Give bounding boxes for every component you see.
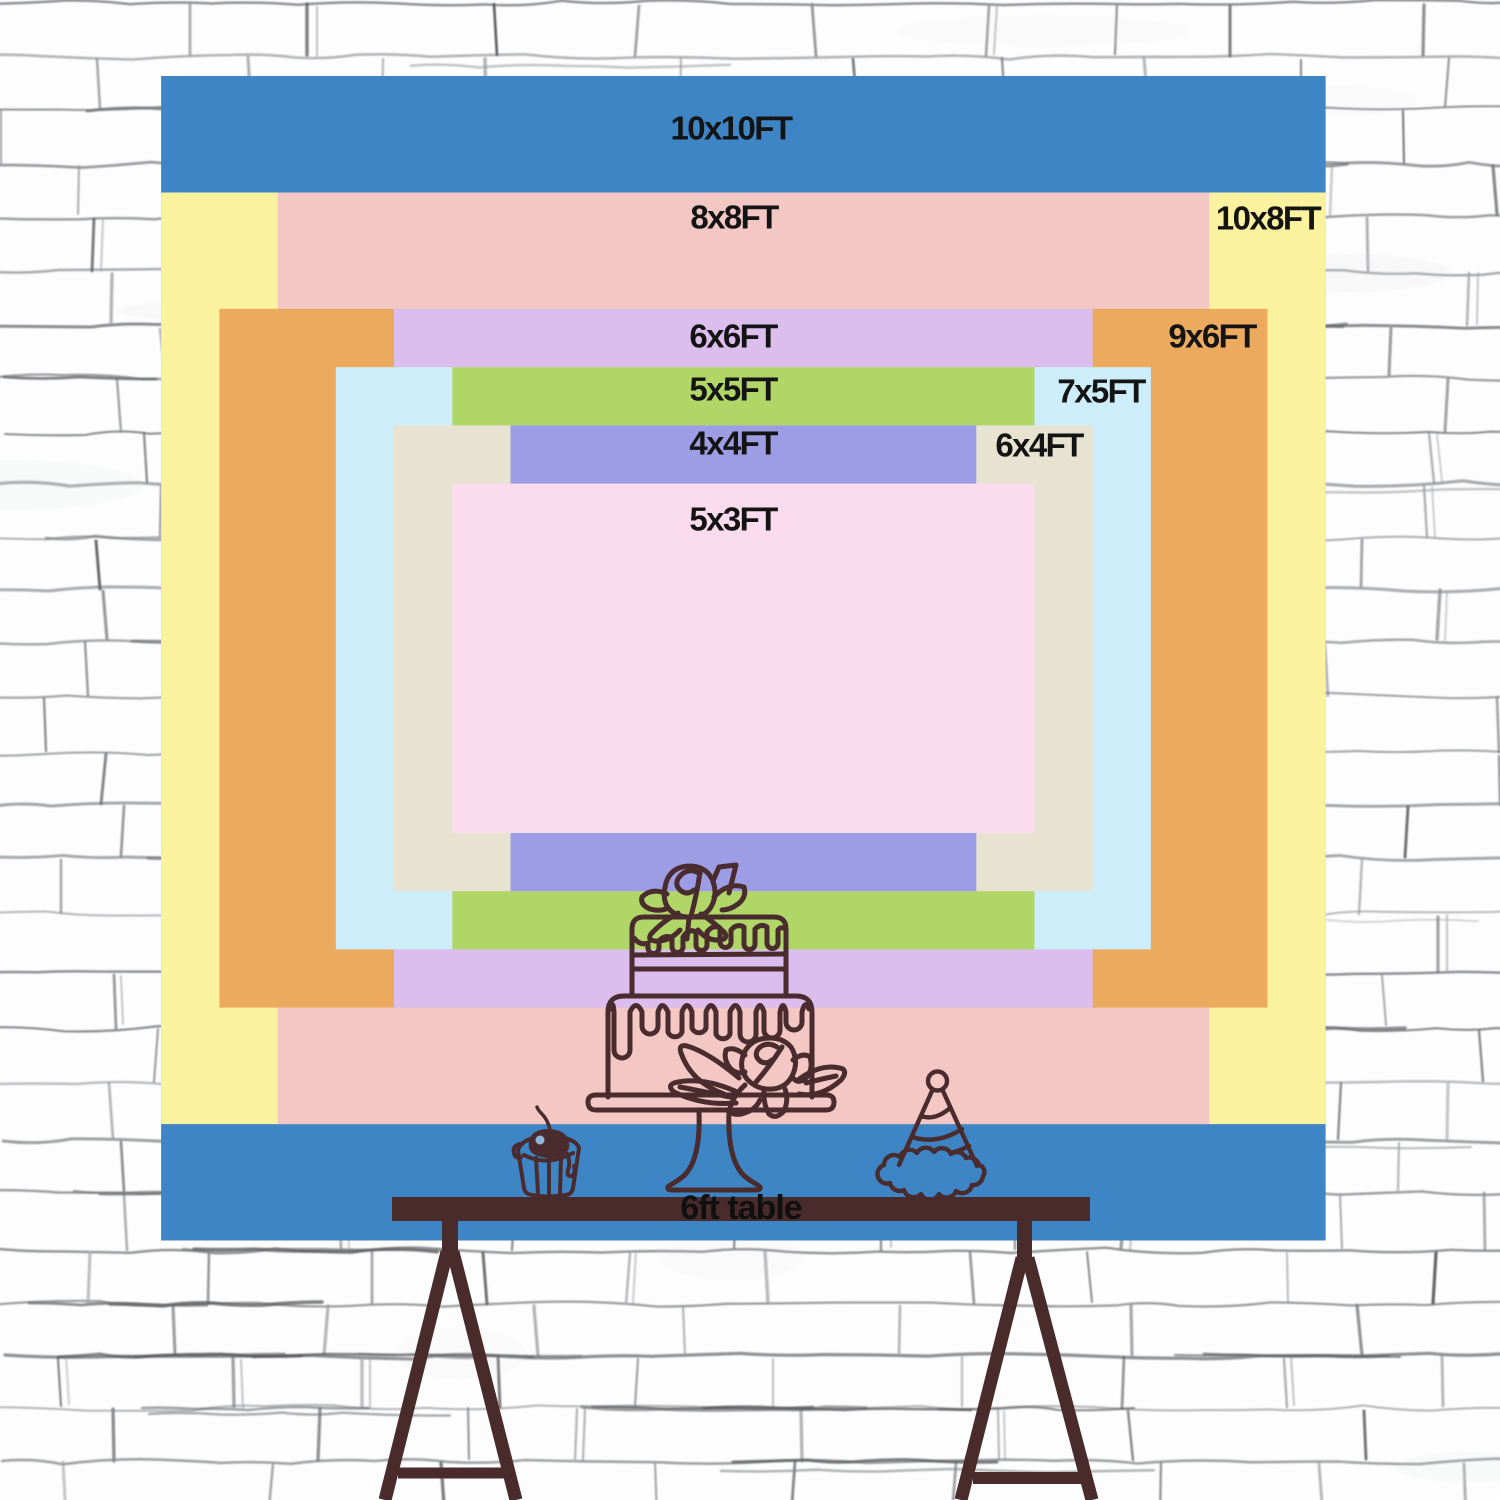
svg-text:5x5FT: 5x5FT: [689, 371, 778, 408]
svg-text:8x8FT: 8x8FT: [690, 199, 779, 236]
svg-text:6x4FT: 6x4FT: [995, 427, 1084, 464]
svg-text:10x10FT: 10x10FT: [671, 110, 793, 147]
svg-text:4x4FT: 4x4FT: [689, 425, 778, 462]
svg-text:7x5FT: 7x5FT: [1057, 373, 1146, 410]
svg-text:10x8FT: 10x8FT: [1216, 200, 1322, 237]
svg-text:6ft table: 6ft table: [680, 1189, 801, 1227]
svg-text:9x6FT: 9x6FT: [1168, 318, 1257, 355]
svg-text:6x6FT: 6x6FT: [689, 318, 778, 355]
svg-text:5x3FT: 5x3FT: [689, 501, 778, 538]
